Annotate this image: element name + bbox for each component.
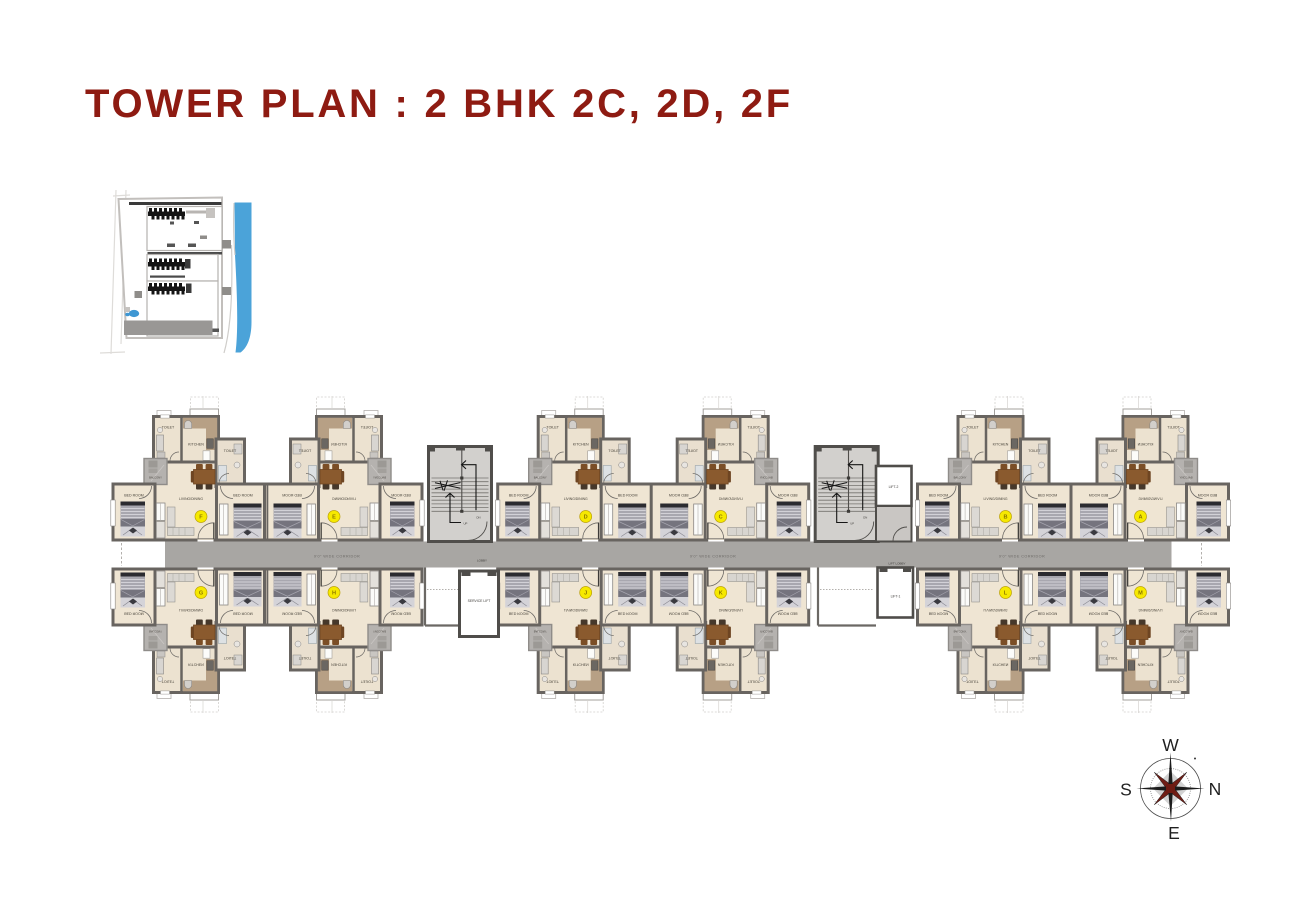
svg-text:D: D [584,515,588,521]
svg-text:9'0" WIDE CORRIDOR: 9'0" WIDE CORRIDOR [999,555,1045,559]
svg-text:S: S [1120,780,1132,800]
svg-text:SERVICE LIFT: SERVICE LIFT [468,599,491,603]
svg-text:M: M [1138,591,1143,597]
svg-text:LIFT-1: LIFT-1 [891,595,901,599]
svg-text:K: K [719,591,723,597]
svg-text:N: N [1209,779,1222,799]
svg-text:F: F [199,515,203,521]
svg-text:LIFT-2: LIFT-2 [889,485,899,489]
svg-text:G: G [199,591,203,597]
svg-text:9'0" WIDE CORRIDOR: 9'0" WIDE CORRIDOR [314,555,360,559]
svg-text:W: W [1162,735,1179,755]
svg-text:E: E [332,515,336,521]
svg-text:LIFT LOBBY: LIFT LOBBY [889,562,906,566]
svg-text:H: H [332,591,336,597]
svg-text:LOBBY: LOBBY [477,559,487,563]
svg-text:9'0" WIDE CORRIDOR: 9'0" WIDE CORRIDOR [690,555,736,559]
svg-text:E: E [1168,823,1180,843]
svg-text:B: B [1003,515,1007,521]
svg-text:A: A [1138,515,1142,521]
svg-text:C: C [719,515,723,521]
svg-text:L: L [1004,591,1008,597]
svg-text:J: J [584,591,587,597]
